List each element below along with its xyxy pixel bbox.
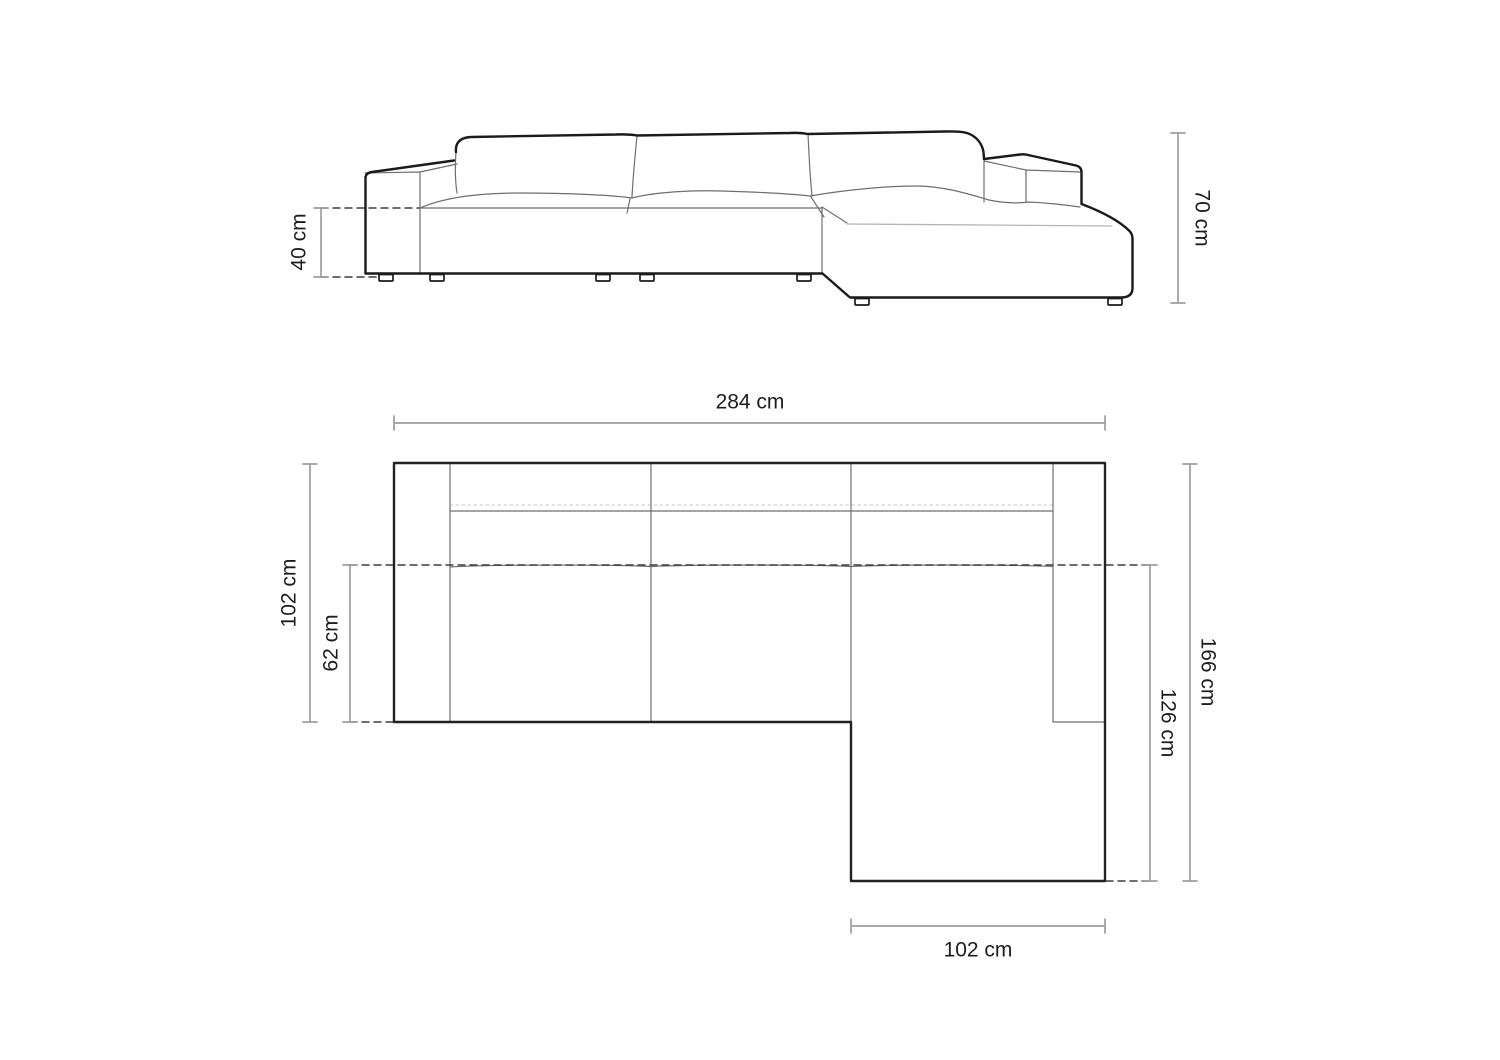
elevation-outline <box>366 131 1133 297</box>
foot <box>855 299 869 306</box>
top-plan-view <box>303 416 1197 933</box>
foot <box>1108 299 1122 306</box>
plan-outline <box>394 463 1105 881</box>
dim-line-102cm-bottom <box>851 919 1105 933</box>
dim-label-seat-depth: 62 cm <box>321 614 342 671</box>
dim-line-70cm <box>1171 133 1185 303</box>
back-cushion-seam-1 <box>632 136 637 197</box>
dim-label-overall-depth: 166 cm <box>1198 638 1219 707</box>
dim-line-126cm <box>1143 565 1157 881</box>
seat-cushion-seam-1 <box>627 199 630 213</box>
foot <box>640 275 654 282</box>
plan-thin-lines <box>450 463 1105 722</box>
dim-label-seat-height: 40 cm <box>289 213 310 270</box>
dim-label-overall-width: 284 cm <box>716 392 785 413</box>
dim-line-102cm-left <box>303 464 317 722</box>
dim-label-chaise-depth: 126 cm <box>1158 689 1179 758</box>
chaise-top-edge <box>847 224 1112 226</box>
dim-label-chaise-width: 102 cm <box>944 940 1013 961</box>
dim-label-overall-height: 70 cm <box>1192 189 1213 246</box>
dim-line-284cm <box>394 416 1105 430</box>
front-elevation <box>314 131 1185 305</box>
left-arm-outline <box>366 161 455 274</box>
foot <box>379 275 393 282</box>
foot <box>596 275 610 282</box>
line-art <box>0 0 1500 1060</box>
seat-cushion-curves <box>420 186 1080 208</box>
seat-height-dashed-lines <box>321 208 420 277</box>
left-arm-inner-edges <box>365 164 457 273</box>
sofa-dimension-diagram: 40 cm 70 cm 284 cm 102 cm 62 cm 166 cm 1… <box>0 0 1500 1060</box>
plan-dimension-lines <box>303 416 1197 933</box>
sofa-feet <box>379 275 1122 306</box>
back-cushions-top <box>456 131 984 159</box>
elevation-thin-lines <box>365 134 1080 273</box>
plan-right-arm-inner <box>1053 463 1105 722</box>
foot <box>430 275 444 282</box>
back-cushion-left-edge <box>455 152 457 193</box>
back-cushion-seam-2 <box>808 134 812 196</box>
dim-line-62cm <box>343 565 357 722</box>
chaise-top-left-slant <box>822 207 847 223</box>
dim-line-166cm <box>1183 464 1197 881</box>
dim-line-40cm <box>314 208 328 277</box>
dim-label-sofa-depth: 102 cm <box>279 559 300 628</box>
right-arm-front-edges <box>984 161 1080 202</box>
foot <box>797 275 811 282</box>
